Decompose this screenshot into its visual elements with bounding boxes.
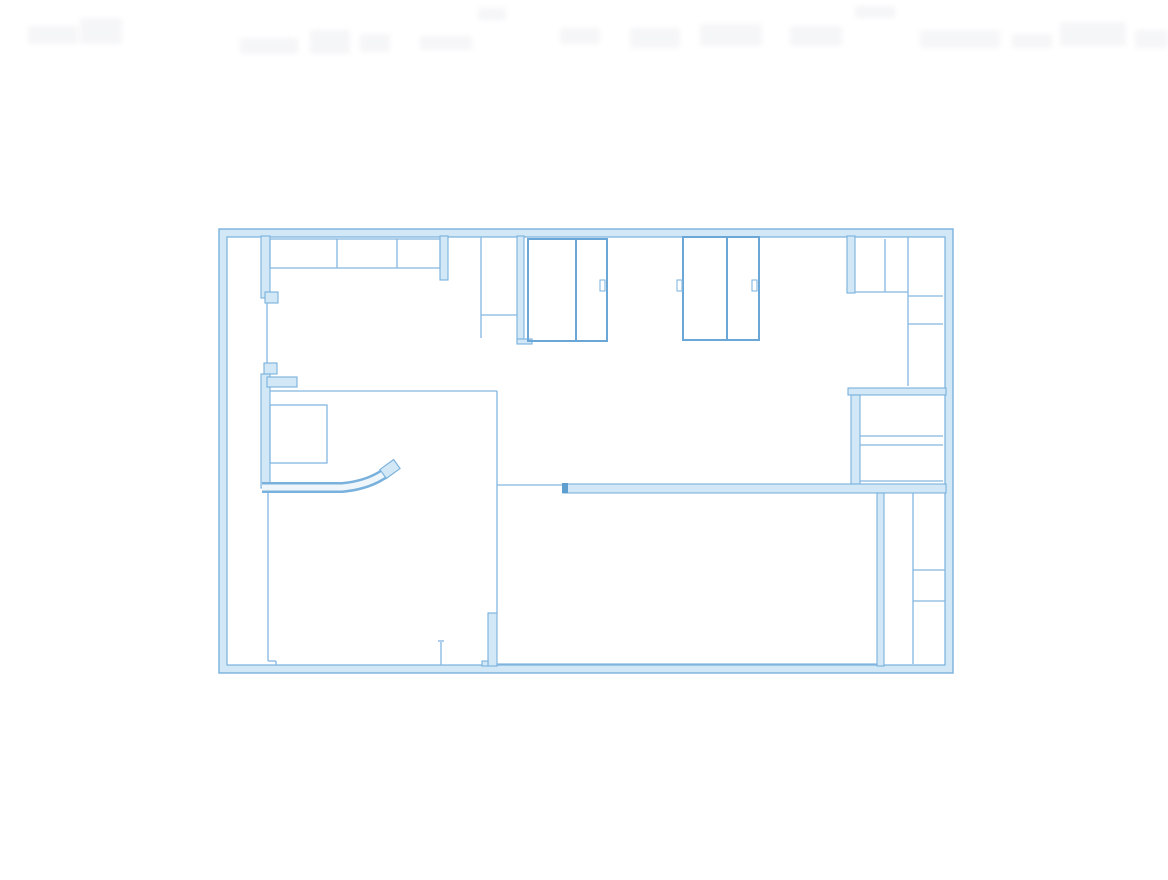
faded-text-smudge [560, 28, 600, 44]
faded-text-smudge [80, 18, 122, 44]
faded-text-smudge [1135, 30, 1168, 48]
faded-text-smudge [1060, 22, 1126, 46]
bottom-right-wall [877, 493, 884, 666]
header-smudges [28, 6, 1168, 54]
left-interior-wall-lower [261, 374, 270, 488]
faded-text-smudge [28, 26, 78, 44]
faded-text-smudge [700, 24, 762, 46]
faded-text-smudge [240, 38, 298, 54]
storage-room-top-wall [848, 388, 946, 395]
door-notch [600, 280, 605, 291]
lower-door-wall-foot [482, 661, 488, 666]
door-notch [677, 280, 682, 291]
wall-end-caps [562, 483, 568, 493]
floor-plan-drawing [0, 0, 1168, 880]
faded-text-smudge [360, 34, 390, 52]
storage-room-left-wall [851, 395, 860, 484]
faded-text-smudge [630, 28, 680, 48]
faded-text-smudge [310, 30, 350, 54]
outer-wall [219, 229, 953, 673]
faded-text-smudge [920, 30, 1000, 48]
closet-row-end-cap [440, 236, 448, 280]
corridor-chase-wall [517, 236, 524, 342]
lower-door-wall [488, 613, 497, 666]
outer-wall-inner-edge [227, 237, 945, 665]
door-notch [752, 280, 757, 291]
faded-text-smudge [478, 8, 506, 20]
left-wall-stub [267, 377, 297, 387]
faded-text-smudge [420, 36, 472, 50]
faded-text-smudge [790, 26, 842, 46]
long-dividing-wall [563, 484, 946, 493]
long-wall-end-cap [562, 483, 568, 493]
page-canvas [0, 0, 1168, 880]
faded-text-smudge [855, 6, 895, 18]
left-wall-jamb-upper [265, 292, 278, 303]
right-upper-wall [847, 236, 855, 293]
faded-text-smudge [1012, 34, 1052, 48]
left-wall-jamb-lower [264, 363, 277, 374]
left-interior-wall-upper [261, 236, 270, 298]
